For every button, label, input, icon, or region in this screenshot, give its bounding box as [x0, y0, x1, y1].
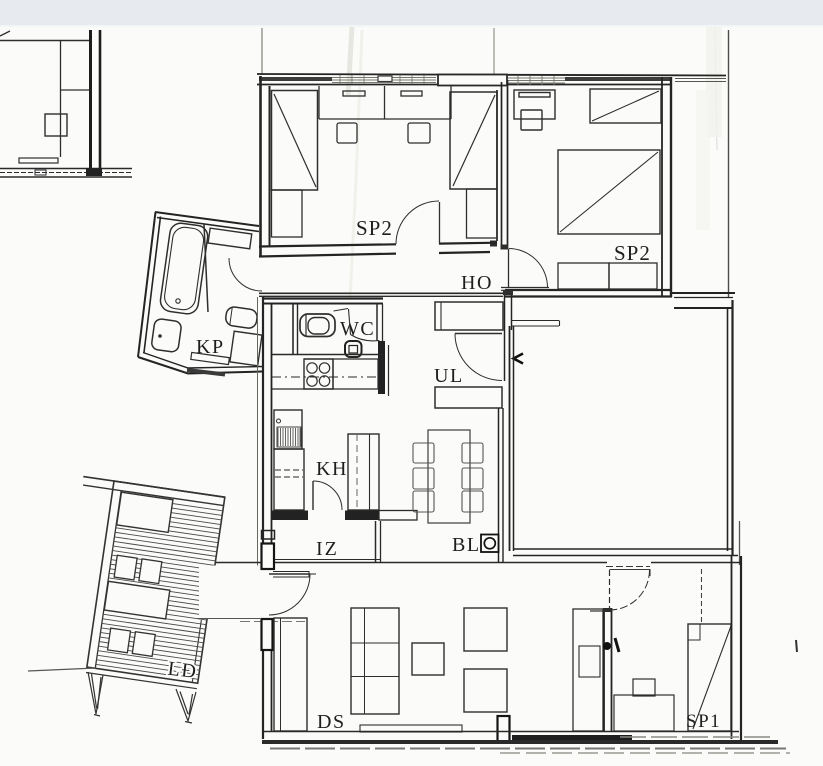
svg-text:KP: KP	[196, 336, 225, 358]
svg-text:HO: HO	[461, 272, 493, 294]
svg-text:BL: BL	[452, 534, 481, 556]
svg-text:KH: KH	[316, 458, 348, 480]
svg-text:UL: UL	[434, 365, 464, 387]
svg-text:SP2: SP2	[356, 216, 393, 240]
svg-text:IZ: IZ	[316, 538, 339, 560]
svg-text:DS: DS	[317, 711, 346, 733]
svg-text:LÐ: LÐ	[167, 658, 199, 683]
svg-text:SP2: SP2	[614, 241, 651, 265]
svg-text:WC: WC	[340, 318, 375, 340]
svg-text:SP1: SP1	[686, 711, 721, 732]
